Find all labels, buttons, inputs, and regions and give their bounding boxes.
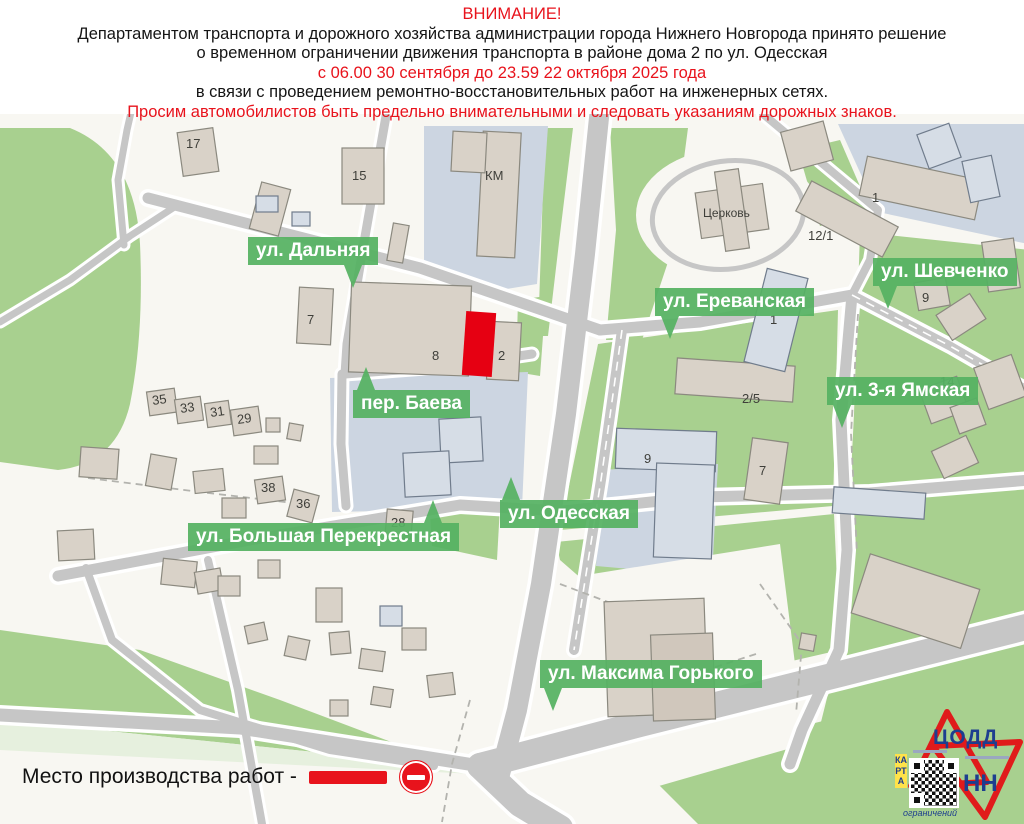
building-label: 33 [179, 399, 195, 416]
header-attention: ВНИМАНИЕ! [0, 5, 1024, 25]
street-name: ул. Максима Горького [548, 663, 754, 684]
street-name: ул. 3-я Ямская [835, 380, 970, 401]
logo-karta-text: КАРТА [895, 754, 907, 788]
street-label-odesskaya: ул. Одесская [500, 500, 638, 528]
street-label-dalnyaya: ул. Дальняя [248, 237, 378, 265]
header-line-6: Просим автомобилистов быть предельно вни… [0, 103, 1024, 123]
street-label-shevchenko: ул. Шевченко [873, 258, 1017, 286]
legend: Место производства работ - [22, 760, 433, 794]
header-line-5: в связи с проведением ремонтно-восстанов… [0, 83, 1024, 103]
street-name: пер. Баева [361, 393, 462, 414]
notice-header: ВНИМАНИЕ! Департаментом транспорта и дор… [0, 5, 1024, 122]
street-name: ул. Дальняя [256, 240, 370, 261]
street-label-perekrestnaya: ул. Большая Перекрестная [188, 523, 459, 551]
building-label: КМ [485, 168, 503, 183]
logo-city-code: НН [963, 770, 998, 798]
street-name: ул. Ереванская [663, 291, 806, 312]
building-label: 29 [236, 410, 252, 427]
logo-tm-mark [913, 750, 947, 753]
building-label: 12/1 [808, 228, 833, 243]
label-pointer [357, 367, 375, 390]
qr-code [909, 758, 959, 808]
building-label: 7 [307, 312, 314, 327]
logo-org-name: ЦОДД [933, 726, 998, 750]
legend-text: Место производства работ - [22, 765, 297, 789]
label-pointer [344, 265, 362, 288]
header-line-3: о временном ограничении движения транспо… [0, 44, 1024, 64]
building-label: 9 [922, 290, 929, 305]
street-label-baeva: пер. Баева [353, 390, 470, 418]
header-line-2: Департаментом транспорта и дорожного хоз… [0, 25, 1024, 45]
building-label: 38 [261, 480, 275, 495]
logo-restrictions-text: ограничений [903, 808, 957, 818]
street-name: ул. Шевченко [881, 261, 1009, 282]
street-label-yamskaya: ул. 3-я Ямская [827, 377, 978, 405]
codd-logo: ЦОДД КАРТА НН ограничений [893, 698, 1024, 822]
label-pointer [879, 286, 897, 309]
label-pointer [544, 688, 562, 711]
building-label: 9 [644, 451, 651, 466]
map-overlay: 17 15 КМ 7 8 2 35 33 31 29 38 36 28 Церк… [0, 114, 1024, 824]
building-label: 2 [498, 348, 505, 363]
building-label: 36 [296, 496, 310, 511]
building-label: 1 [872, 190, 879, 205]
building-label: 15 [352, 168, 366, 183]
building-label: 2/5 [742, 391, 760, 406]
label-pointer [502, 477, 520, 500]
label-pointer [661, 316, 679, 339]
building-label: 8 [432, 348, 439, 363]
work-site-line-sample [309, 771, 387, 784]
no-entry-icon [399, 760, 433, 794]
building-label: 31 [209, 403, 225, 420]
street-name: ул. Большая Перекрестная [196, 526, 451, 547]
building-label-church: Церковь [703, 206, 750, 220]
building-label: 17 [186, 136, 200, 151]
logo-vk-mark [965, 756, 1009, 759]
building-label: 7 [759, 463, 766, 478]
header-dates: с 06.00 30 сентября до 23.59 22 октября … [0, 64, 1024, 84]
label-pointer [833, 405, 851, 428]
label-pointer [424, 500, 442, 523]
street-label-erevanskaya: ул. Ереванская [655, 288, 814, 316]
street-label-gorkogo: ул. Максима Горького [540, 660, 762, 688]
building-label: 35 [151, 391, 167, 408]
street-name: ул. Одесская [508, 503, 630, 524]
